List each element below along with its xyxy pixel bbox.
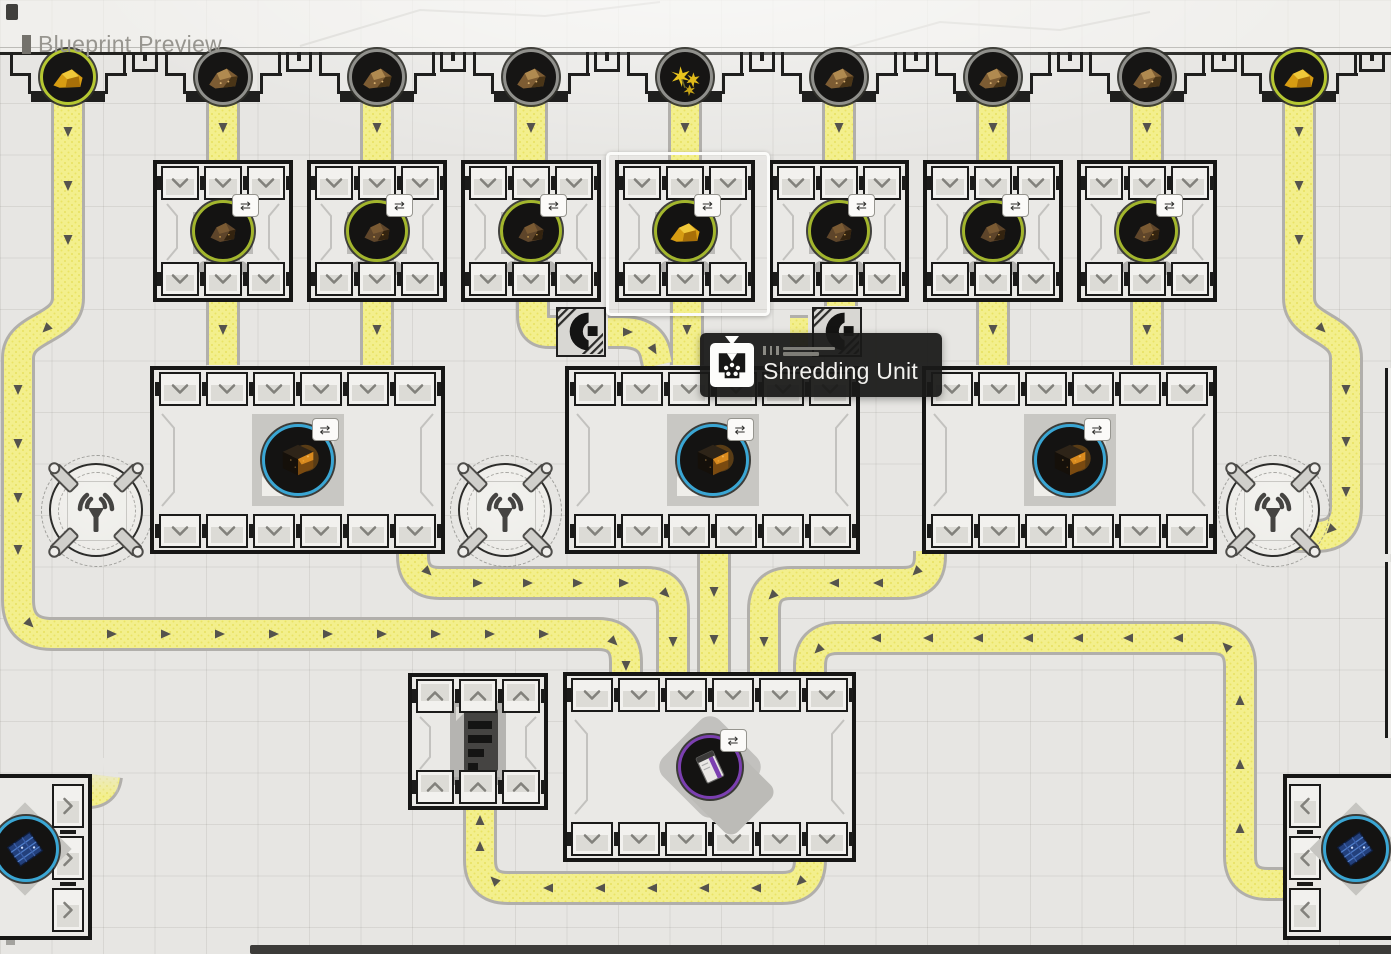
- slot-tick: [1013, 272, 1017, 286]
- corner-building-right[interactable]: [1283, 774, 1391, 940]
- wall-bay: [876, 73, 879, 94]
- io-slot: [502, 679, 540, 713]
- slot-tick: [1056, 272, 1060, 286]
- page-title: Blueprint Preview: [22, 31, 222, 58]
- slot-tick: [1209, 524, 1213, 538]
- io-slot: [512, 262, 550, 296]
- slot-tick: [437, 524, 441, 538]
- wall-notch-tick: [914, 52, 918, 61]
- slot-tick: [859, 272, 863, 286]
- shredder-6[interactable]: ⇄: [923, 160, 1063, 302]
- slot-tick: [296, 524, 300, 538]
- node-3[interactable]: [349, 49, 405, 105]
- wall-notch-tick: [605, 52, 609, 61]
- slot-tick: [200, 176, 204, 190]
- io-slot: [820, 262, 858, 296]
- slot-tick: [455, 689, 459, 703]
- slot-tick: [1210, 272, 1214, 286]
- slot-tick: [594, 176, 598, 190]
- slot-tick: [902, 176, 906, 190]
- slot-tick: [859, 176, 863, 190]
- slot-tick: [440, 272, 444, 286]
- io-slot: [416, 770, 454, 804]
- signal-tower[interactable]: [445, 450, 565, 570]
- slot-tick: [60, 882, 76, 886]
- slot-tick: [498, 780, 502, 794]
- wall-bay: [1031, 73, 1052, 76]
- wall-bay: [568, 73, 571, 94]
- slot-tick: [508, 272, 512, 286]
- slot-tick: [1162, 524, 1166, 538]
- io-slot: [502, 770, 540, 804]
- io-slot: [1171, 262, 1209, 296]
- slot-tick: [711, 524, 715, 538]
- io-slot: [931, 262, 969, 296]
- io-slot: [1072, 514, 1114, 548]
- slot-tick: [661, 832, 665, 846]
- slot-tick: [465, 176, 469, 190]
- slot-tick: [286, 272, 290, 286]
- slot-tick: [974, 524, 978, 538]
- slot-tick: [1115, 524, 1119, 538]
- transfer-filter-badge-icon: ⇄: [312, 418, 339, 441]
- wall-bay: [105, 73, 108, 94]
- storage-small[interactable]: [408, 673, 548, 810]
- slot-tick: [664, 382, 668, 396]
- transfer-filter-badge-icon: ⇄: [727, 418, 754, 441]
- item-blue-circuit-icon: [0, 816, 59, 882]
- io-slot: [974, 262, 1012, 296]
- io-slot: [1289, 888, 1321, 932]
- slot-tick: [465, 272, 469, 286]
- shredder-3[interactable]: ⇄: [461, 160, 601, 302]
- transfer-filter-badge-icon: ⇄: [386, 194, 413, 217]
- slot-tick: [541, 780, 545, 794]
- slot-tick: [849, 832, 853, 846]
- slot-tick: [200, 272, 204, 286]
- slot-tick: [755, 688, 759, 702]
- slot-tick: [1209, 382, 1213, 396]
- io-slot: [621, 514, 663, 548]
- slot-tick: [202, 382, 206, 396]
- io-slot: [759, 678, 801, 712]
- io-slot: [394, 372, 436, 406]
- shredder-1[interactable]: ⇄: [153, 160, 293, 302]
- io-slot: [52, 888, 84, 932]
- slot-tick: [755, 832, 759, 846]
- slot-tick: [202, 524, 206, 538]
- wall-bay: [414, 73, 417, 94]
- node-7[interactable]: [965, 49, 1021, 105]
- io-slot: [459, 770, 497, 804]
- wall-notch-tick: [1222, 52, 1226, 61]
- io-slot: [574, 514, 616, 548]
- io-slot: [621, 372, 663, 406]
- antenna-icon: [1245, 482, 1301, 538]
- slot-tick: [927, 272, 931, 286]
- io-slot: [1128, 262, 1166, 296]
- slot-tick: [1297, 882, 1313, 886]
- io-slot: [618, 678, 660, 712]
- io-slot: [1072, 372, 1114, 406]
- slot-tick: [708, 688, 712, 702]
- transfer-filter-badge-icon: ⇄: [1084, 418, 1111, 441]
- slot-tick: [541, 689, 545, 703]
- wall-bay: [1184, 73, 1187, 94]
- transfer-filter-badge-icon: ⇄: [540, 194, 567, 217]
- transfer-filter-badge-icon: ⇄: [232, 194, 259, 217]
- io-slot: [206, 514, 248, 548]
- slot-tick: [1013, 176, 1017, 190]
- io-slot: [253, 514, 295, 548]
- slot-tick: [157, 176, 161, 190]
- collector-3[interactable]: ⇄: [922, 366, 1217, 554]
- wall-bay: [1185, 73, 1206, 76]
- slot-tick: [802, 832, 806, 846]
- io-slot: [668, 514, 710, 548]
- wall-bay: [1337, 73, 1358, 76]
- slot-tick: [773, 272, 777, 286]
- item-blue-circuit-icon: [1323, 816, 1389, 882]
- io-slot: [806, 822, 848, 856]
- io-slot: [469, 262, 507, 296]
- title-bar-icon: [22, 35, 31, 54]
- io-slot: [809, 514, 851, 548]
- node-5[interactable]: [657, 49, 713, 105]
- io-slot: [571, 822, 613, 856]
- slot-tick: [249, 382, 253, 396]
- slot-tick: [927, 176, 931, 190]
- io-slot: [159, 514, 201, 548]
- offscreen-building-edge: [1385, 562, 1391, 738]
- slot-tick: [1124, 272, 1128, 286]
- io-slot: [253, 372, 295, 406]
- wall-bay: [260, 73, 263, 94]
- slot-tick: [551, 272, 555, 286]
- slot-tick: [773, 176, 777, 190]
- slot-tick: [508, 176, 512, 190]
- transfer-filter-badge-icon: ⇄: [848, 194, 875, 217]
- wall-notch-tick: [760, 52, 764, 61]
- antenna-icon: [68, 482, 124, 538]
- io-slot: [759, 822, 801, 856]
- slot-tick: [617, 382, 621, 396]
- io-slot: [1289, 784, 1321, 828]
- wall-notch-tick: [451, 52, 455, 61]
- slot-tick: [343, 524, 347, 538]
- slot-tick: [661, 688, 665, 702]
- slot-tick: [1068, 524, 1072, 538]
- wall-bay: [1336, 73, 1339, 94]
- processor-wide[interactable]: ⇄: [563, 672, 856, 862]
- transfer-filter-badge-icon: ⇄: [1002, 194, 1029, 217]
- antenna-icon: [477, 482, 533, 538]
- slot-tick: [570, 524, 574, 538]
- io-slot: [978, 372, 1020, 406]
- slot-tick: [805, 524, 809, 538]
- slot-tick: [243, 272, 247, 286]
- slot-tick: [343, 382, 347, 396]
- slot-tick: [852, 524, 856, 538]
- slot-tick: [412, 780, 416, 794]
- io-slot: [931, 166, 969, 200]
- slot-tick: [614, 832, 618, 846]
- io-slot: [204, 262, 242, 296]
- slot-tick: [354, 272, 358, 286]
- io-slot: [978, 514, 1020, 548]
- corner-building-left[interactable]: [0, 774, 92, 940]
- slot-tick: [567, 688, 571, 702]
- io-slot: [777, 262, 815, 296]
- slot-tick: [437, 382, 441, 396]
- slot-tick: [390, 524, 394, 538]
- slot-tick: [1081, 272, 1085, 286]
- slot-tick: [354, 176, 358, 190]
- io-slot: [1025, 372, 1067, 406]
- io-slot: [161, 262, 199, 296]
- slot-tick: [296, 382, 300, 396]
- wall-notch-tick: [1370, 52, 1374, 61]
- building-tooltip: Shredding Unit: [700, 333, 942, 397]
- wall-bay: [106, 73, 127, 76]
- slot-tick: [60, 830, 76, 834]
- io-slot: [571, 678, 613, 712]
- slot-tick: [664, 524, 668, 538]
- slot-tick: [455, 780, 459, 794]
- io-slot: [469, 166, 507, 200]
- io-slot: [1166, 514, 1208, 548]
- tooltip-brand-mark: [763, 346, 918, 356]
- slot-tick: [155, 524, 159, 538]
- io-slot: [416, 679, 454, 713]
- slot-tick: [390, 382, 394, 396]
- slot-tick: [1021, 524, 1025, 538]
- io-slot: [206, 372, 248, 406]
- corner-marker-icon: [6, 4, 18, 20]
- slot-tick: [440, 176, 444, 190]
- io-slot: [1119, 514, 1161, 548]
- slot-tick: [708, 832, 712, 846]
- io-slot: [347, 372, 389, 406]
- slot-tick: [397, 272, 401, 286]
- slot-tick: [1068, 382, 1072, 396]
- io-slot: [618, 822, 660, 856]
- io-slot: [1085, 166, 1123, 200]
- slot-tick: [970, 176, 974, 190]
- slot-tick: [1297, 830, 1313, 834]
- io-slot: [459, 679, 497, 713]
- signal-tower[interactable]: [1213, 450, 1333, 570]
- io-slot: [247, 262, 285, 296]
- slot-tick: [614, 688, 618, 702]
- slot-tick: [286, 176, 290, 190]
- io-slot: [863, 262, 901, 296]
- slot-tick: [1210, 176, 1214, 190]
- slot-tick: [1124, 176, 1128, 190]
- io-slot: [574, 372, 616, 406]
- wall-bay: [1030, 73, 1033, 94]
- blueprint-canvas[interactable]: ⇄ ⇄ ⇄: [0, 0, 1391, 954]
- io-slot: [401, 262, 439, 296]
- wall-bay: [261, 73, 282, 76]
- wall-notch-tick: [297, 52, 301, 61]
- shredder-7[interactable]: ⇄: [1077, 160, 1217, 302]
- io-slot: [1119, 372, 1161, 406]
- wall-notch-tick: [1068, 52, 1072, 61]
- slot-tick: [311, 176, 315, 190]
- slot-tick: [570, 382, 574, 396]
- io-slot: [300, 372, 342, 406]
- slot-tick: [551, 176, 555, 190]
- slot-tick: [816, 272, 820, 286]
- node-4[interactable]: [503, 49, 559, 105]
- signal-tower[interactable]: [36, 450, 156, 570]
- io-slot: [315, 262, 353, 296]
- io-slot: [315, 166, 353, 200]
- wall-bay: [877, 73, 898, 76]
- tooltip-title: Shredding Unit: [763, 358, 918, 385]
- io-slot: [347, 514, 389, 548]
- io-slot: [1166, 372, 1208, 406]
- io-slot: [161, 166, 199, 200]
- offscreen-building-edge: [1385, 368, 1391, 554]
- io-slot: [1025, 514, 1067, 548]
- slot-tick: [311, 272, 315, 286]
- slot-tick: [1167, 272, 1171, 286]
- slot-tick: [802, 688, 806, 702]
- io-slot: [300, 514, 342, 548]
- io-slot: [712, 678, 754, 712]
- slot-tick: [902, 272, 906, 286]
- slot-tick: [1167, 176, 1171, 190]
- wall-bay: [415, 73, 436, 76]
- node-9[interactable]: [1271, 49, 1327, 105]
- io-slot: [1085, 262, 1123, 296]
- selected-building-frame: [606, 152, 770, 316]
- wall-bay: [569, 73, 590, 76]
- belt-tunnel-icon[interactable]: [556, 307, 606, 357]
- slot-tick: [849, 688, 853, 702]
- slot-tick: [594, 272, 598, 286]
- io-slot: [358, 262, 396, 296]
- node-8[interactable]: [1119, 49, 1175, 105]
- io-slot: [665, 678, 707, 712]
- slot-tick: [974, 382, 978, 396]
- wall-bay: [722, 73, 725, 94]
- transfer-filter-badge-icon: ⇄: [720, 729, 747, 752]
- slot-tick: [1056, 176, 1060, 190]
- slot-tick: [412, 689, 416, 703]
- transfer-filter-badge-icon: ⇄: [1156, 194, 1183, 217]
- io-slot: [665, 822, 707, 856]
- wall-bay: [723, 73, 744, 76]
- slot-tick: [617, 524, 621, 538]
- slot-tick: [970, 272, 974, 286]
- collector-1[interactable]: ⇄: [150, 366, 445, 554]
- io-slot: [777, 166, 815, 200]
- slot-tick: [927, 524, 931, 538]
- node-6[interactable]: [811, 49, 867, 105]
- io-slot: [159, 372, 201, 406]
- shredder-2[interactable]: ⇄: [307, 160, 447, 302]
- slot-tick: [1115, 382, 1119, 396]
- shredder-icon: [710, 343, 754, 387]
- slot-tick: [1162, 382, 1166, 396]
- slot-tick: [758, 524, 762, 538]
- slot-tick: [243, 176, 247, 190]
- io-slot: [394, 514, 436, 548]
- slot-tick: [155, 382, 159, 396]
- io-slot: [555, 262, 593, 296]
- slot-tick: [816, 176, 820, 190]
- horizontal-scrollbar[interactable]: [250, 945, 1391, 954]
- slot-tick: [1081, 176, 1085, 190]
- io-slot: [806, 678, 848, 712]
- slot-tick: [1021, 382, 1025, 396]
- slot-tick: [249, 524, 253, 538]
- io-slot: [931, 514, 973, 548]
- slot-tick: [157, 272, 161, 286]
- io-slot: [762, 514, 804, 548]
- io-slot: [52, 784, 84, 828]
- io-slot: [715, 514, 757, 548]
- io-slot: [1017, 262, 1055, 296]
- slot-tick: [567, 832, 571, 846]
- shredder-5[interactable]: ⇄: [769, 160, 909, 302]
- slot-tick: [397, 176, 401, 190]
- slot-tick: [498, 689, 502, 703]
